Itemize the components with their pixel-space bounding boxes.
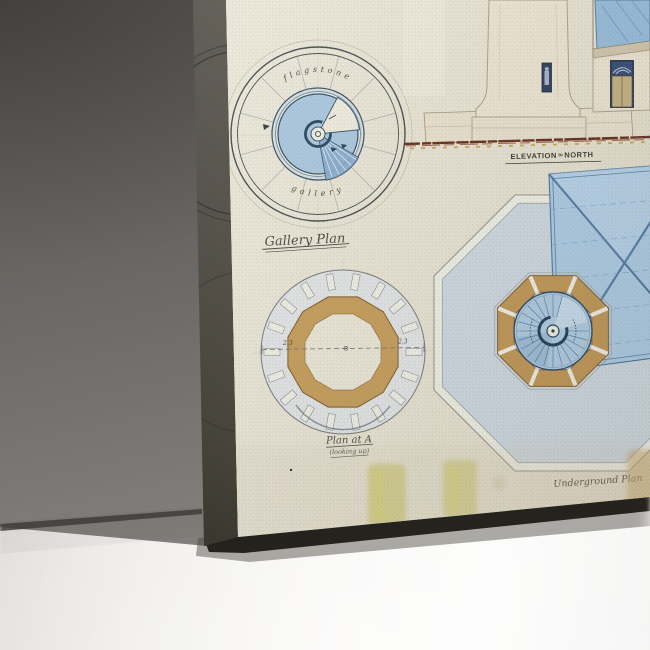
ring-interior xyxy=(305,314,380,389)
lighthouse-tower xyxy=(476,0,580,117)
tower-plinth xyxy=(472,117,586,141)
elevation-label: ELEVATIONtoNORTH xyxy=(510,150,593,161)
fleck xyxy=(290,469,292,471)
flagstone-curved-label: flagstone xyxy=(281,65,354,84)
figure-silhouette xyxy=(545,71,550,85)
underground-plan-drawing: Underground Plan xyxy=(434,163,650,490)
dimension-left: 2.3 xyxy=(282,340,293,347)
gallery-plan-caption: Gallery Plan xyxy=(262,231,350,252)
plan-at-a-drawing: 2.3 2.3 Plan at A (looking up) xyxy=(261,270,425,458)
elevation-caption: ELEVATIONtoNORTH xyxy=(505,150,601,164)
dimension-right: 2.3 xyxy=(397,339,408,346)
scene: flagstone gallery Gallery Plan xyxy=(0,0,650,650)
underground-stair-plan xyxy=(514,292,592,370)
section-marker xyxy=(263,124,270,130)
elevation-drawing: ELEVATIONtoNORTH xyxy=(403,0,650,164)
door-fanlight xyxy=(612,62,632,75)
faded-paper-patch xyxy=(403,0,445,96)
gallery-plan-label: Gallery Plan xyxy=(264,231,345,250)
